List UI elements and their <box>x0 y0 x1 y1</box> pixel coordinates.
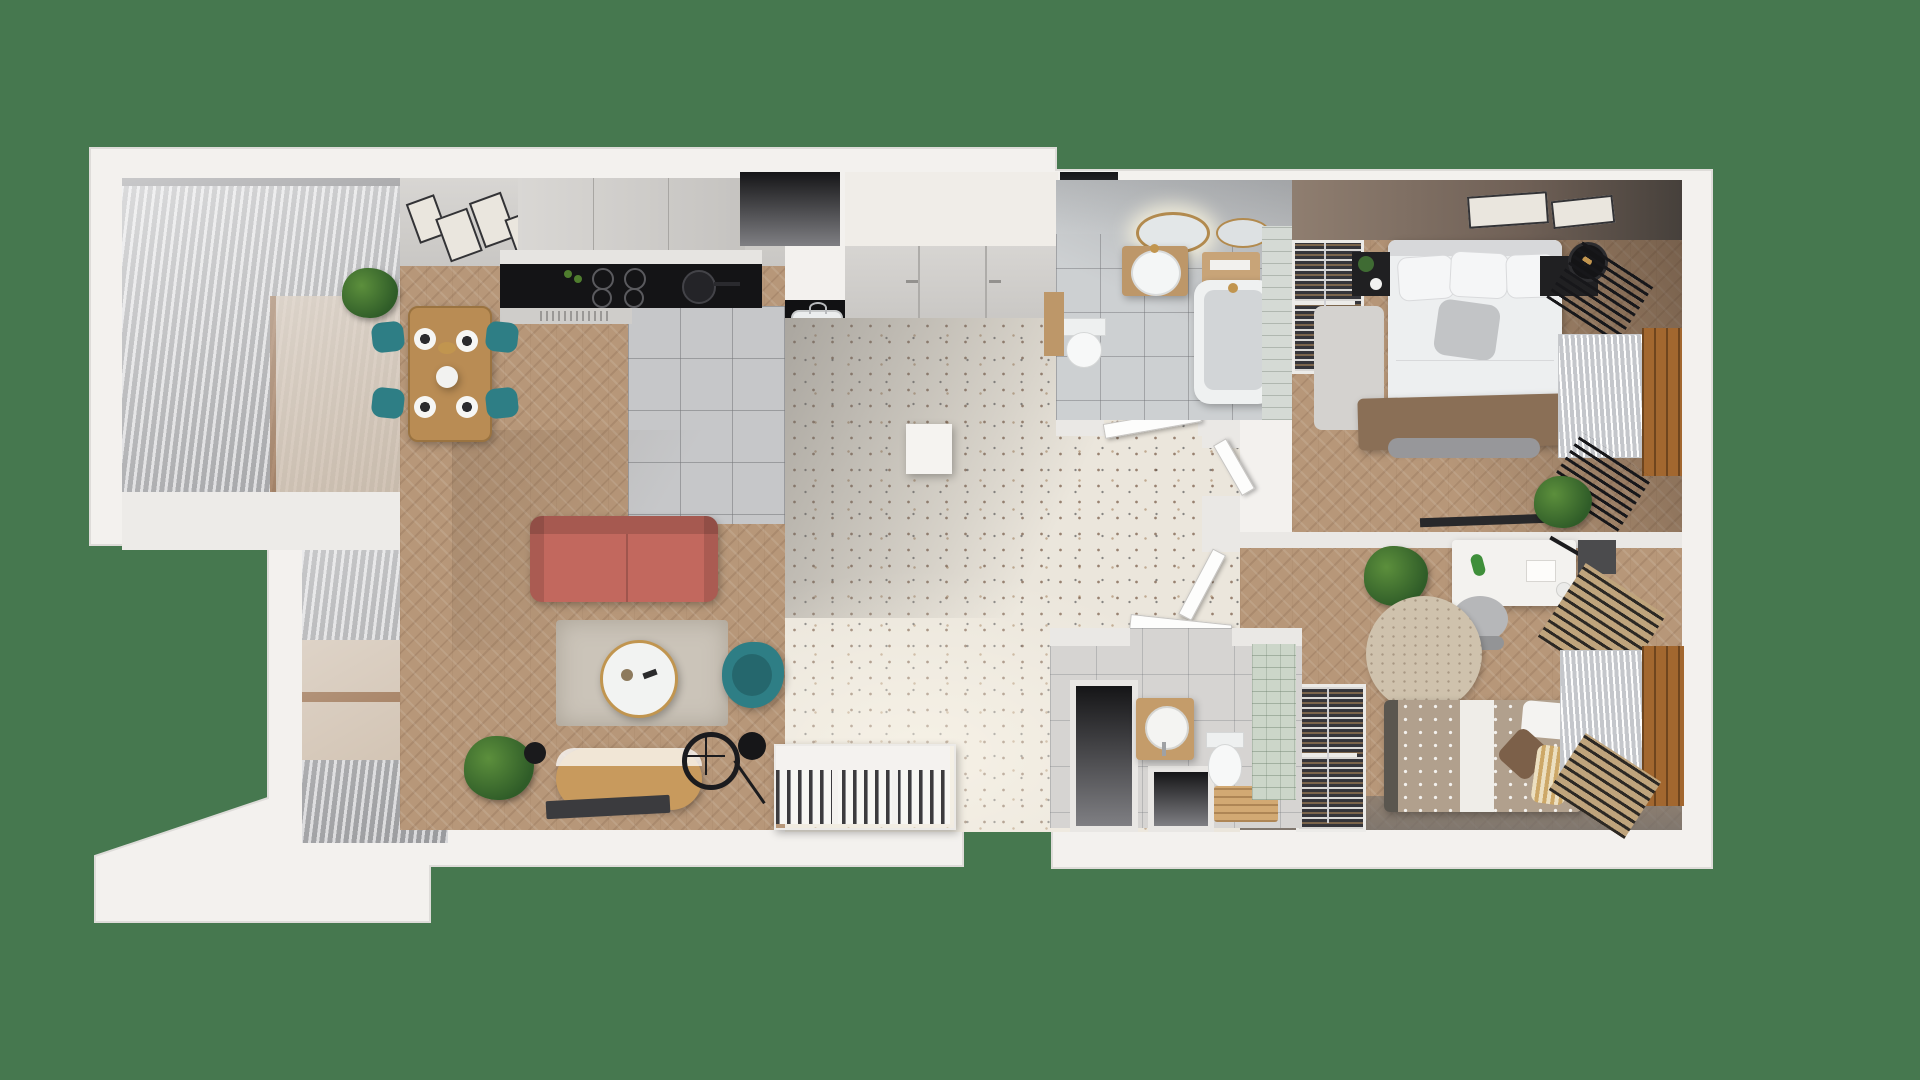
shoe-cabinet <box>906 424 952 474</box>
duvet-fold <box>1396 360 1554 361</box>
burner <box>624 268 646 290</box>
shoe-rack-rail <box>1327 687 1329 823</box>
kitchen-upper-cabinets <box>518 178 745 256</box>
sofa-cushion-seam <box>626 534 628 602</box>
record-shelf-divider <box>832 770 838 824</box>
throw-pillow <box>1432 298 1501 362</box>
table-remote <box>642 669 657 679</box>
burner <box>624 288 644 308</box>
sheer-curtain <box>122 178 400 500</box>
place-setting <box>414 396 436 418</box>
kids-bed <box>1384 700 1582 812</box>
nightstand-left <box>1352 252 1390 296</box>
table-decor <box>621 669 633 681</box>
faucet <box>809 302 827 314</box>
round-rug <box>1366 596 1482 712</box>
place-setting <box>456 396 478 418</box>
place-setting <box>414 328 436 350</box>
wc-green-tile-wall <box>1252 644 1296 800</box>
record-slots <box>776 770 950 824</box>
floorplan-scene <box>0 0 1920 1080</box>
balcony-upper <box>122 178 400 500</box>
installation-void <box>740 172 840 246</box>
pan-handle <box>714 282 740 286</box>
wc-faucet <box>1162 742 1166 756</box>
pillow <box>1397 254 1456 302</box>
record-shelf-top <box>776 746 950 770</box>
living-plant <box>464 736 534 800</box>
nightstand-plant <box>1358 256 1374 272</box>
closet-handle <box>906 280 918 283</box>
dining-chair <box>485 320 520 353</box>
vegetables <box>564 270 572 278</box>
record-shelf <box>774 744 956 830</box>
wc-toilet-bowl <box>1208 744 1242 788</box>
toilet-bowl <box>1066 332 1102 368</box>
vent-grille <box>540 311 610 321</box>
sofa-armrest <box>704 516 718 602</box>
bedroom-plant <box>1534 476 1592 528</box>
open-book <box>1526 560 1556 582</box>
dining-chair <box>371 386 406 419</box>
wc-wall-stub <box>1050 628 1130 646</box>
parrot-figurine <box>1469 553 1486 577</box>
wc-toilet <box>1204 732 1244 788</box>
bath-tiled-wall <box>1262 226 1294 420</box>
place-setting <box>456 330 478 352</box>
wheel-stand <box>682 732 740 790</box>
shoe-rack <box>1296 684 1366 832</box>
entry-closet-front <box>845 246 1058 322</box>
duvet-white-stripe <box>1460 700 1494 812</box>
wheel-spoke <box>687 755 725 757</box>
coffee-table <box>600 640 678 718</box>
sofa <box>530 516 718 602</box>
wc-installation-void <box>1076 686 1132 826</box>
kitchen-counter <box>500 250 762 264</box>
cooktop <box>500 264 762 308</box>
sofa-armrest <box>530 516 544 602</box>
hall-wall-stub <box>1202 496 1240 552</box>
centerpiece-sphere <box>436 366 458 388</box>
frying-pan <box>682 270 716 304</box>
entry-closet-top <box>845 172 1058 246</box>
wc-basin <box>1145 706 1189 750</box>
closet-seam <box>918 246 920 322</box>
sideboard-top <box>556 748 702 766</box>
towel <box>1210 260 1250 270</box>
pillow <box>1449 251 1509 300</box>
tub-fixture <box>1228 283 1238 293</box>
gold-tray <box>438 342 456 354</box>
gold-faucet <box>1150 244 1159 253</box>
toilet <box>1062 318 1104 366</box>
closet-seam <box>985 246 987 322</box>
wc-installation-void <box>1154 772 1208 826</box>
bathroom-wall-stub <box>1198 418 1240 436</box>
bath-vanity <box>1122 246 1188 296</box>
base-cabinet-strip <box>500 308 632 324</box>
vegetables <box>574 275 582 283</box>
bedroom-window-blinds <box>1558 334 1646 458</box>
cabinet-seam <box>593 178 594 250</box>
dining-chair <box>485 386 520 419</box>
vase <box>1370 278 1382 290</box>
plant-pot <box>524 742 546 764</box>
record-shelf-divider <box>892 770 898 824</box>
dining-plant <box>342 268 398 318</box>
closet-handle <box>989 280 1001 283</box>
sofa-backrest <box>530 516 718 534</box>
burner <box>592 288 612 308</box>
cabinet-seam <box>668 178 669 250</box>
bathtub-interior <box>1204 290 1264 390</box>
armchair-seat <box>732 654 772 696</box>
bathroom-wall-stub <box>1056 418 1104 436</box>
bedroom-frame <box>1467 191 1549 229</box>
window-wood-frame <box>1642 328 1682 476</box>
tall-bath-cabinet <box>1044 292 1064 356</box>
bed-end-bench <box>1388 438 1540 458</box>
dining-chair <box>371 320 406 353</box>
wc-basin-stand <box>1136 698 1194 760</box>
floor-lamp-head <box>738 732 766 760</box>
burner <box>592 268 614 290</box>
wash-basin <box>1131 250 1181 296</box>
